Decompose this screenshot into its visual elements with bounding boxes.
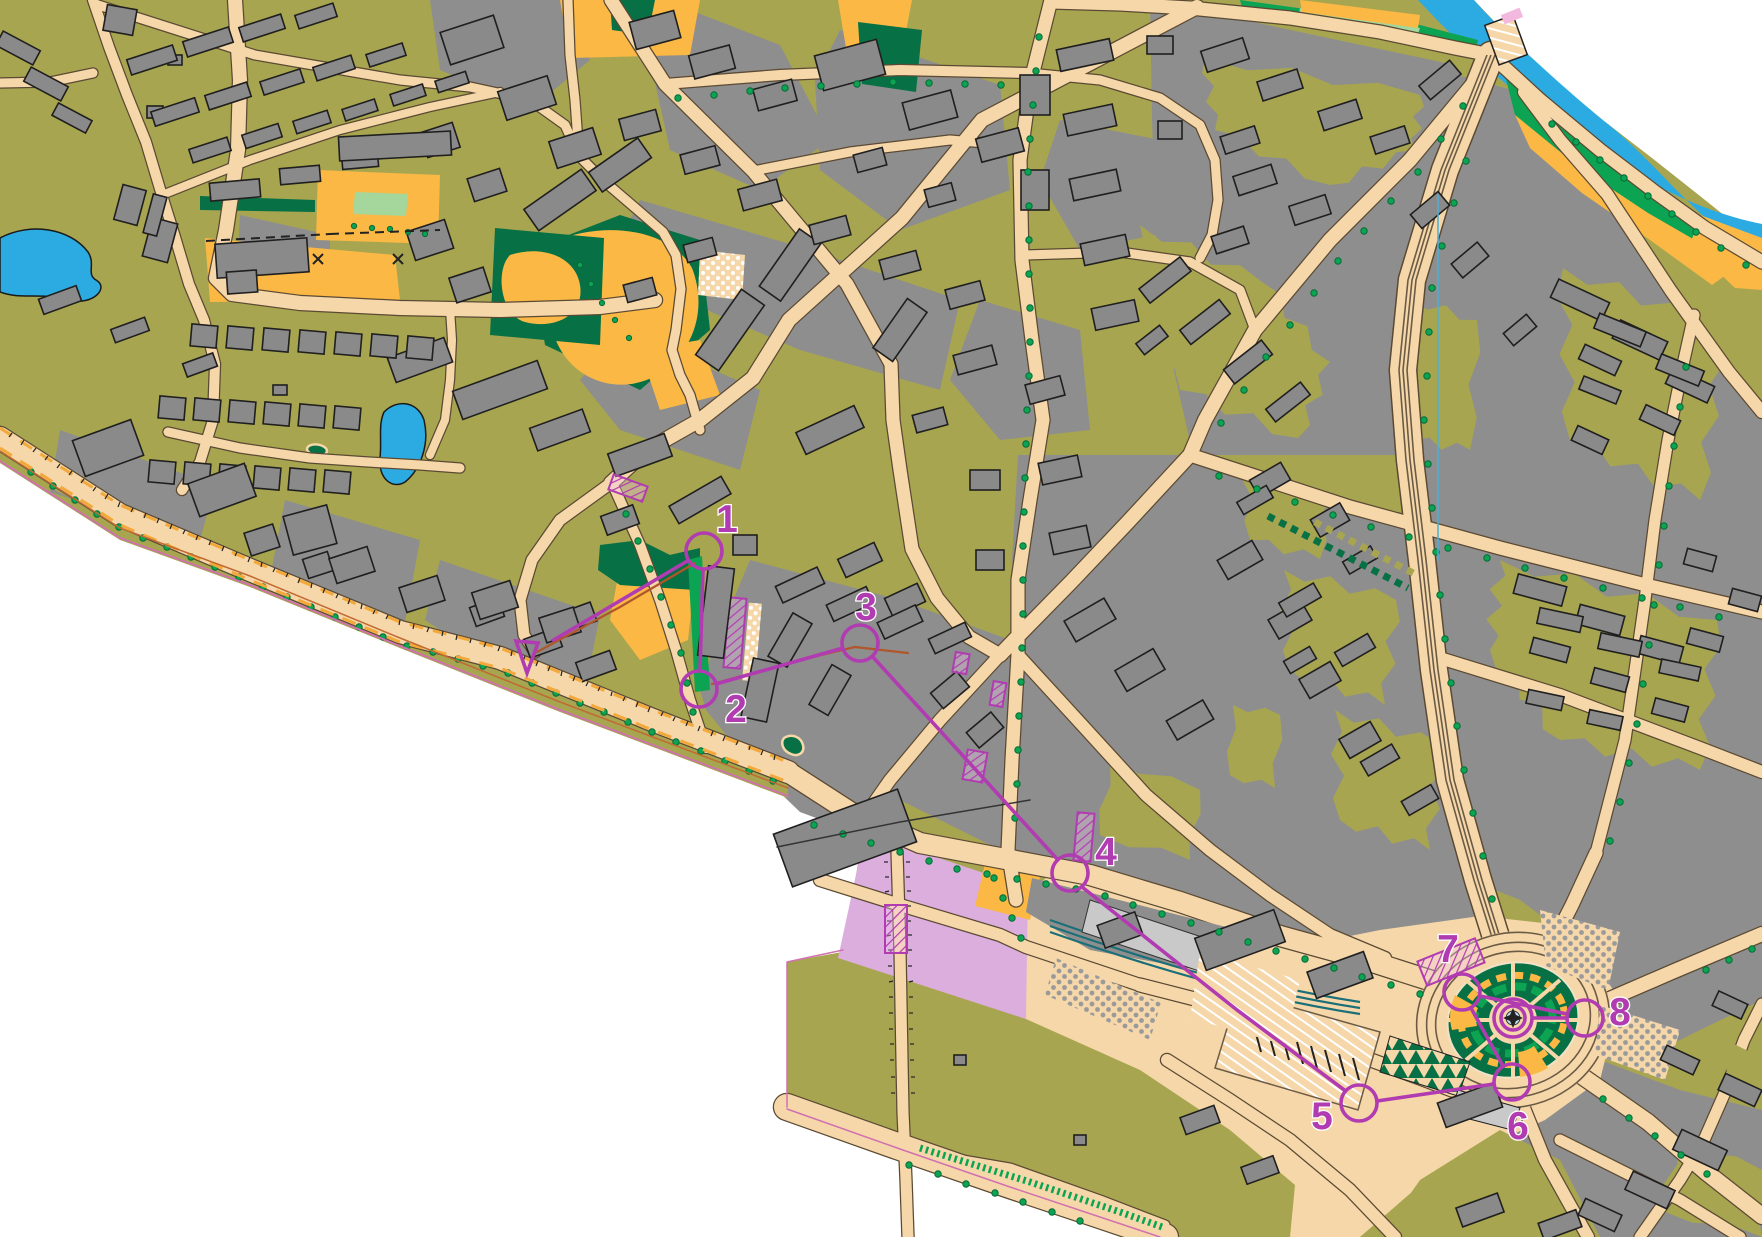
svg-text:7: 7: [1437, 928, 1459, 971]
svg-text:6: 6: [1507, 1105, 1529, 1148]
svg-text:4: 4: [1095, 831, 1117, 874]
svg-text:1: 1: [716, 498, 738, 541]
svg-text:3: 3: [855, 586, 877, 629]
svg-text:2: 2: [725, 688, 747, 731]
svg-text:5: 5: [1311, 1095, 1333, 1138]
svg-text:8: 8: [1609, 991, 1631, 1034]
